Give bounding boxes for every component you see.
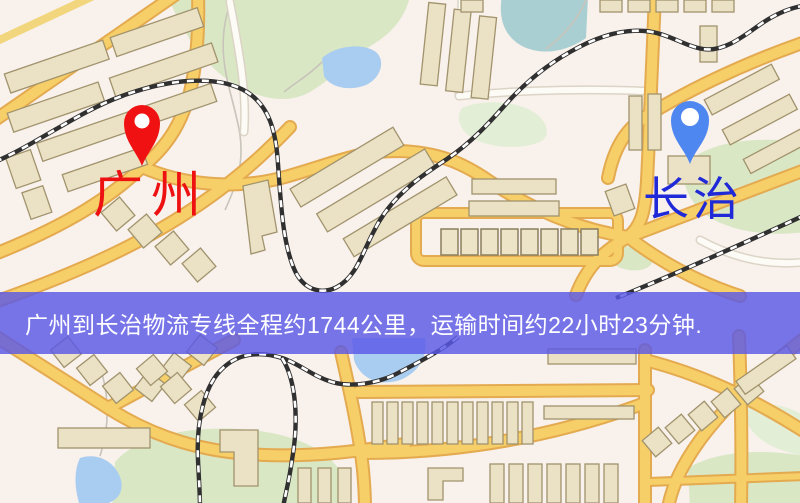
- map-screenshot: 广州 长治 广州到长治物流专线全程约1744公里，运输时间约22小时23分钟.: [0, 0, 800, 503]
- destination-city-label: 长治: [643, 176, 743, 222]
- route-info-banner: 广州到长治物流专线全程约1744公里，运输时间约22小时23分钟.: [0, 292, 800, 354]
- map-background: [0, 0, 800, 503]
- destination-pin-icon: [667, 97, 713, 165]
- origin-pin-hole: [135, 114, 150, 129]
- origin-city-label: 广州: [93, 170, 209, 220]
- origin-pin-icon: [120, 101, 164, 167]
- destination-pin-hole: [681, 108, 699, 126]
- route-info-text: 广州到长治物流专线全程约1744公里，运输时间约22小时23分钟.: [0, 306, 702, 340]
